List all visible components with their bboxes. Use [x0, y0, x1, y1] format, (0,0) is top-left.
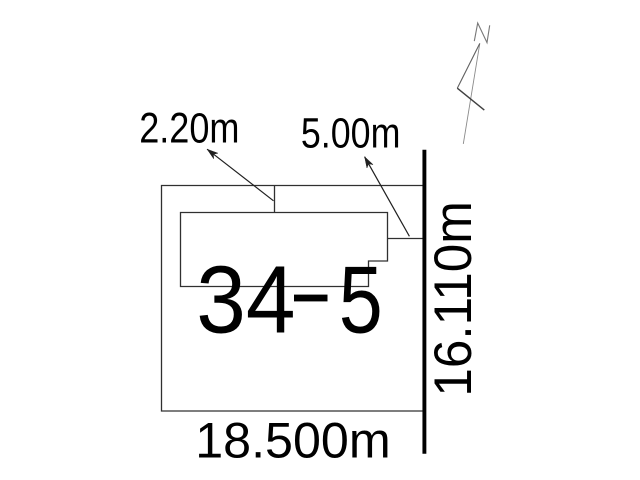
- svg-text:16.110m: 16.110m: [424, 201, 483, 397]
- svg-text:5.00m: 5.00m: [301, 109, 401, 157]
- svg-text:5: 5: [339, 247, 383, 354]
- svg-text:18.500m: 18.500m: [195, 411, 391, 468]
- svg-text:2.20m: 2.20m: [139, 106, 239, 153]
- svg-text:34: 34: [196, 247, 295, 354]
